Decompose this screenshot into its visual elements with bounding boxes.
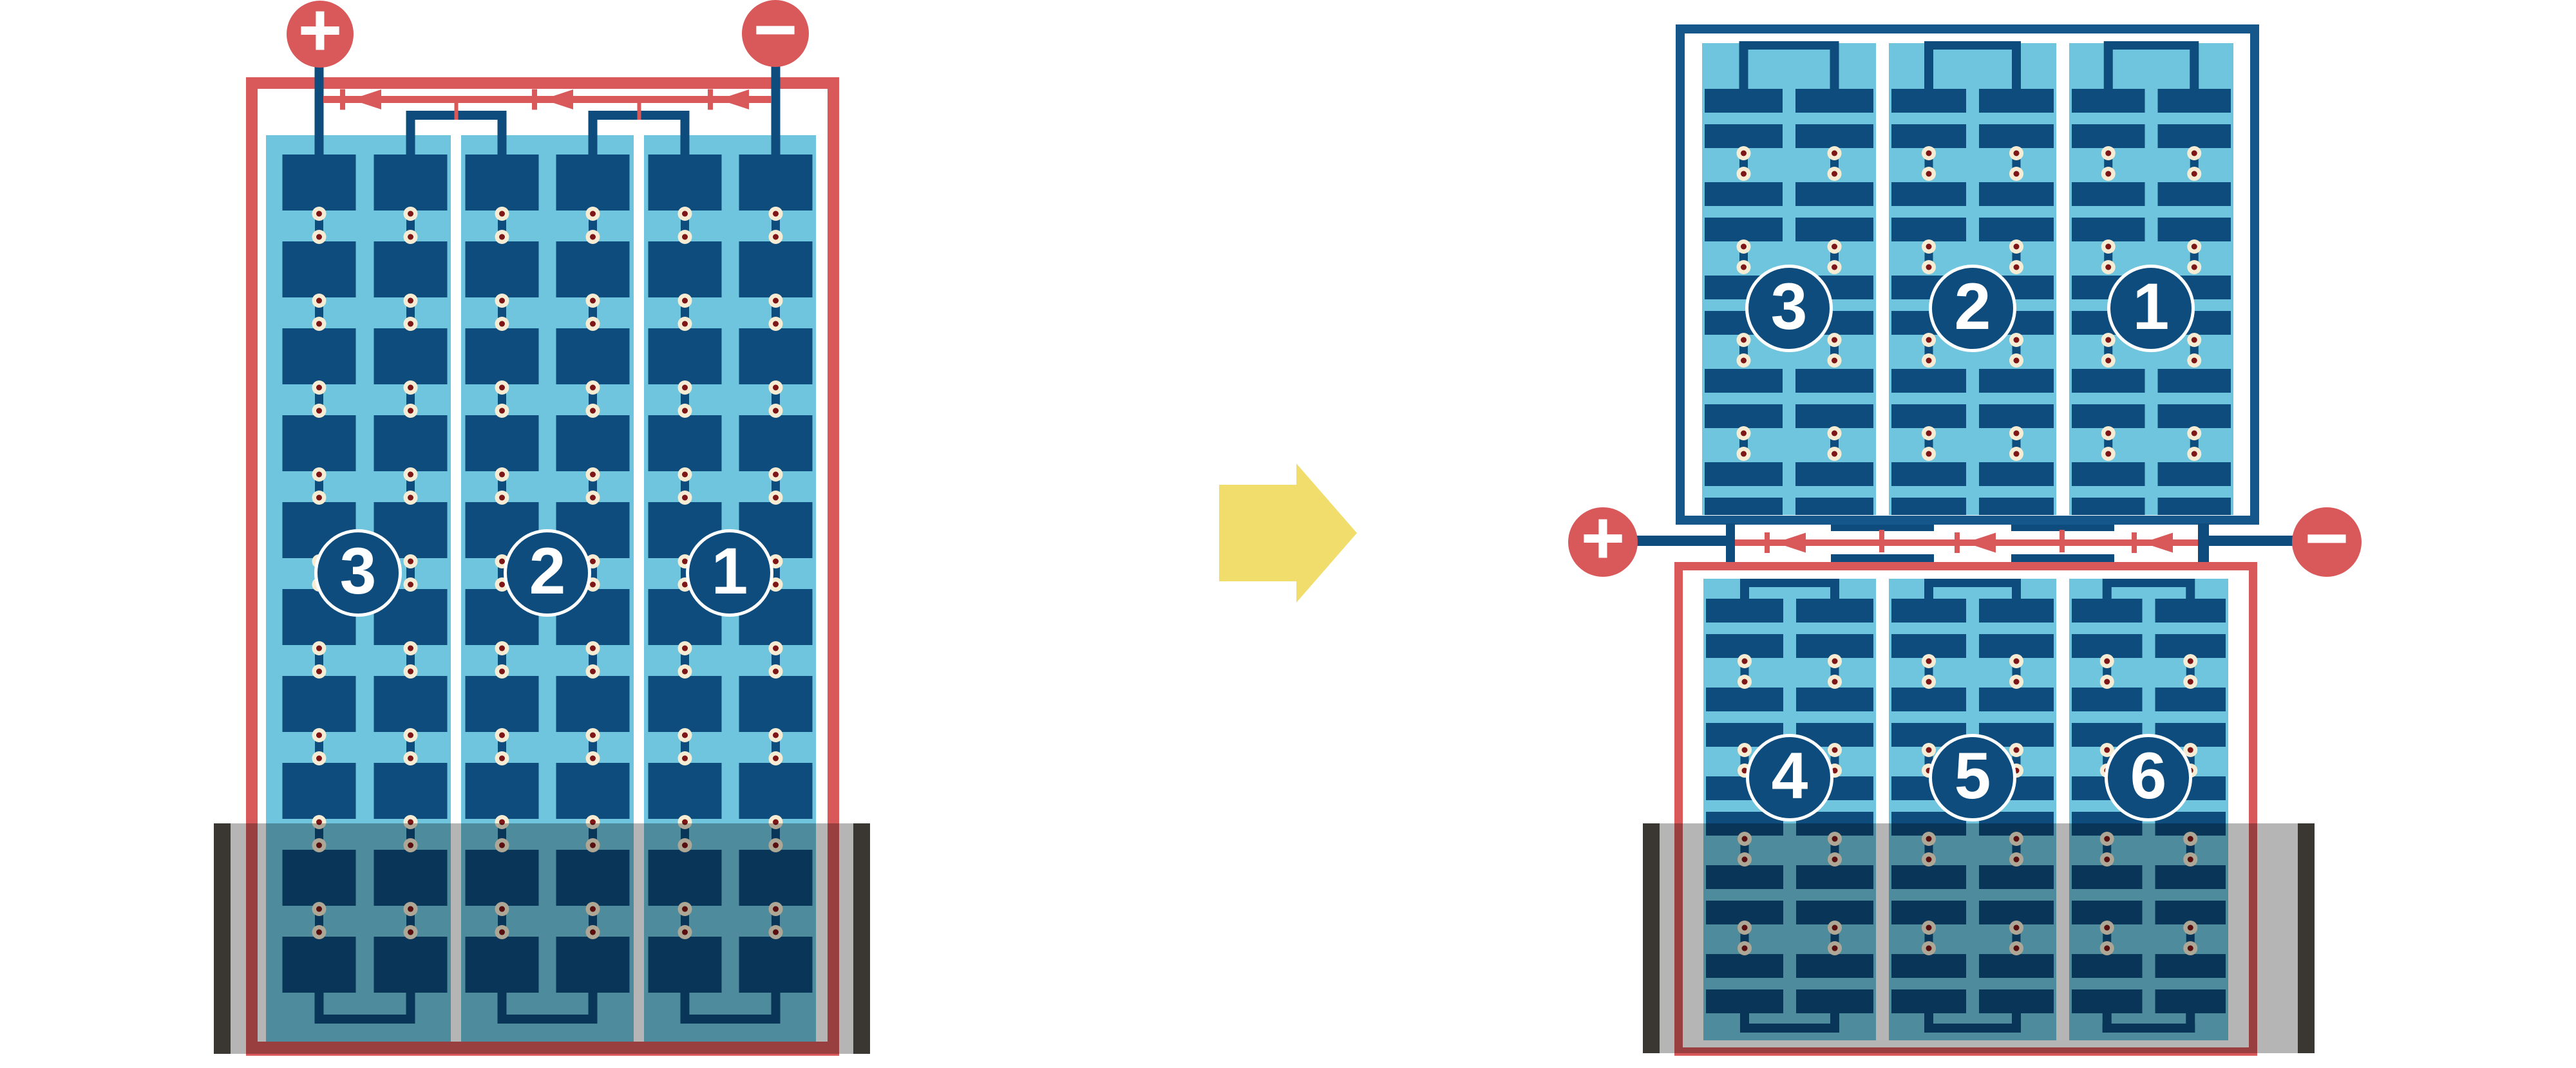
string-label-circle: 2 bbox=[1929, 265, 2016, 352]
cell-plate bbox=[283, 328, 356, 384]
string-label: 1 bbox=[712, 538, 748, 604]
top-bridge-leg bbox=[1924, 50, 1933, 89]
cell-plate bbox=[649, 328, 722, 384]
cell-plate bbox=[1795, 404, 1873, 428]
shade-edge-bar bbox=[853, 823, 870, 1054]
string-label-circle: 3 bbox=[314, 529, 402, 617]
cell-plate bbox=[649, 415, 722, 471]
cell-plate bbox=[739, 328, 813, 384]
cell-plate bbox=[1795, 369, 1873, 393]
pv-module-shading-figure: + − + − 3 2 1 3 2 1 4 5 6 bbox=[0, 0, 2576, 1068]
solder-dot-center bbox=[590, 669, 596, 675]
solder-dot-center bbox=[2105, 431, 2111, 436]
solder-dot-center bbox=[499, 472, 505, 478]
top-bridge-leg bbox=[589, 120, 598, 155]
solder-dot-center bbox=[1832, 431, 1837, 436]
solder-dot-center bbox=[316, 472, 322, 478]
solder-dot-center bbox=[682, 646, 688, 651]
cell-plate bbox=[1705, 462, 1783, 486]
solder-dot-center bbox=[2105, 244, 2111, 250]
solder-dot-center bbox=[682, 298, 688, 304]
solder-dot-center bbox=[1832, 151, 1837, 156]
shading-group bbox=[214, 823, 2315, 1054]
solder-dot-center bbox=[1832, 659, 1838, 664]
solder-dot-center bbox=[2014, 747, 2020, 753]
solder-dot-center bbox=[499, 495, 505, 501]
cell-plate bbox=[1795, 89, 1873, 113]
transform-arrow-group bbox=[1219, 464, 1357, 603]
solder-dot-center bbox=[2192, 337, 2197, 343]
solder-dot-center bbox=[773, 495, 779, 501]
cell-plate bbox=[466, 241, 539, 297]
cell-plate bbox=[2072, 369, 2145, 393]
cell-plate bbox=[466, 415, 539, 471]
cell-plate bbox=[2158, 182, 2231, 206]
cell-plate bbox=[1795, 218, 1873, 241]
cell-plate bbox=[1706, 688, 1783, 711]
solder-dot-center bbox=[1741, 451, 1747, 457]
solder-dot-center bbox=[773, 646, 779, 651]
solder-dot-center bbox=[682, 756, 688, 762]
shadow-overlay bbox=[1660, 823, 2298, 1053]
top-bridge-leg bbox=[2190, 50, 2199, 89]
cell-plate bbox=[466, 155, 539, 211]
cell-plate bbox=[2072, 404, 2145, 428]
solder-dot-center bbox=[773, 669, 779, 675]
cell-plate bbox=[1979, 688, 2054, 711]
solder-dot-center bbox=[499, 211, 505, 217]
cell-plate bbox=[739, 415, 813, 471]
positive-stem bbox=[315, 64, 324, 155]
cell-plate bbox=[649, 763, 722, 819]
top-bridge-bar bbox=[1924, 41, 2021, 50]
cell-plate bbox=[1979, 182, 2054, 206]
solder-dot-center bbox=[408, 298, 413, 304]
cell-plate bbox=[1979, 599, 2054, 623]
cell-plate bbox=[1705, 369, 1783, 393]
string-label: 3 bbox=[1771, 274, 1808, 339]
string-label-circle: 1 bbox=[686, 529, 773, 617]
solder-dot-center bbox=[1832, 244, 1837, 250]
solder-dot-center bbox=[773, 298, 779, 304]
cell-plate bbox=[1795, 182, 1873, 206]
solder-dot-center bbox=[2105, 337, 2111, 343]
solder-dot-center bbox=[682, 472, 688, 478]
solder-dot-center bbox=[2105, 358, 2111, 364]
solder-dot-center bbox=[773, 321, 779, 327]
solder-dot-center bbox=[1926, 244, 1932, 250]
solder-dot-center bbox=[408, 733, 413, 738]
solder-dot-center bbox=[1926, 451, 1932, 457]
cell-plate bbox=[2158, 498, 2231, 515]
cell-plate bbox=[1705, 124, 1783, 148]
solder-dot-center bbox=[2192, 244, 2197, 250]
cell-plate bbox=[1979, 404, 2054, 428]
string-gap bbox=[2056, 43, 2069, 515]
cell-plate bbox=[1891, 688, 1966, 711]
cell-plate bbox=[1979, 89, 2054, 113]
solder-dot-center bbox=[499, 298, 505, 304]
cell-plate bbox=[466, 763, 539, 819]
solder-dot-center bbox=[499, 669, 505, 675]
top-bridge-leg bbox=[2012, 50, 2021, 89]
solder-dot-center bbox=[1832, 171, 1837, 177]
solder-dot-center bbox=[316, 408, 322, 414]
cell-plate bbox=[2158, 218, 2231, 241]
solder-dot-center bbox=[408, 211, 413, 217]
cell-plate bbox=[2072, 599, 2143, 623]
solder-dot-center bbox=[1926, 337, 1932, 343]
solder-dot-center bbox=[590, 756, 596, 762]
top-bridge-bar bbox=[1739, 41, 1839, 50]
cell-plate bbox=[1891, 218, 1966, 241]
solder-dot-center bbox=[682, 495, 688, 501]
cell-plate bbox=[2158, 89, 2231, 113]
right-arrow-icon bbox=[1219, 464, 1357, 603]
cell-plate bbox=[283, 155, 356, 211]
top-bridge-bar bbox=[1740, 579, 1839, 587]
solder-dot-center bbox=[2014, 659, 2020, 664]
solder-dot-center bbox=[2014, 431, 2020, 436]
top-bridge-leg bbox=[1830, 50, 1839, 89]
module-wiring-diagram-svg bbox=[0, 0, 2576, 1068]
cell-plate bbox=[556, 241, 630, 297]
string-label: 3 bbox=[340, 538, 377, 604]
solder-dot-center bbox=[1926, 431, 1932, 436]
solder-dot-center bbox=[2105, 151, 2111, 156]
cell-plate bbox=[1979, 369, 2054, 393]
string-label: 5 bbox=[1955, 743, 1991, 809]
diode-tap bbox=[455, 103, 459, 120]
solder-dot-center bbox=[2105, 451, 2111, 457]
shadow-overlay bbox=[231, 823, 853, 1054]
solder-dot-center bbox=[408, 234, 413, 240]
cell-plate bbox=[374, 676, 448, 732]
solder-dot-center bbox=[2192, 151, 2197, 156]
cell-plate bbox=[1891, 182, 1966, 206]
right-negative-terminal: − bbox=[2292, 507, 2362, 577]
cell-plate bbox=[2072, 218, 2145, 241]
diode-tap bbox=[638, 103, 641, 120]
solder-dot-center bbox=[590, 385, 596, 391]
diode-bar bbox=[2132, 532, 2137, 553]
solder-dot-center bbox=[408, 321, 413, 327]
solder-dot-center bbox=[316, 669, 322, 675]
cell-plate bbox=[2158, 462, 2231, 486]
solder-dot-center bbox=[2014, 265, 2020, 270]
positive-bus bbox=[1636, 536, 1735, 546]
string-label-circle: 3 bbox=[1745, 265, 1833, 352]
top-bridge-leg bbox=[406, 120, 415, 155]
plus-icon: + bbox=[298, 0, 343, 68]
solder-dot-center bbox=[2192, 265, 2197, 270]
solder-dot-center bbox=[2188, 747, 2193, 753]
junction-riser bbox=[2198, 523, 2209, 562]
solder-dot-center bbox=[2105, 171, 2111, 177]
solder-dot-center bbox=[1926, 679, 1932, 685]
cell-plate bbox=[1891, 462, 1966, 486]
solder-dot-center bbox=[316, 646, 322, 651]
string-label-circle: 4 bbox=[1746, 734, 1833, 821]
interconnect-tab bbox=[1831, 554, 1934, 562]
solder-dot-center bbox=[408, 756, 413, 762]
string-label-circle: 5 bbox=[1929, 734, 2016, 821]
cell-plate bbox=[2155, 599, 2226, 623]
minus-icon: − bbox=[2305, 500, 2349, 576]
top-bridge-bar bbox=[1924, 579, 2021, 587]
solder-dot-center bbox=[2014, 337, 2020, 343]
solder-dot-center bbox=[316, 211, 322, 217]
junction-riser bbox=[1726, 523, 1735, 562]
solder-dot-center bbox=[499, 234, 505, 240]
solder-dot-center bbox=[773, 756, 779, 762]
solder-dot-center bbox=[499, 321, 505, 327]
cell-plate bbox=[374, 763, 448, 819]
cell-plate bbox=[466, 328, 539, 384]
solder-dot-center bbox=[1832, 337, 1837, 343]
cell-plate bbox=[1705, 498, 1783, 515]
solder-dot-center bbox=[682, 408, 688, 414]
junction-tick bbox=[1879, 530, 1884, 552]
solder-dot-center bbox=[499, 756, 505, 762]
solder-dot-center bbox=[1832, 358, 1837, 364]
minus-icon: − bbox=[753, 0, 798, 68]
cell-plate bbox=[1891, 369, 1966, 393]
cell-plate bbox=[2072, 89, 2145, 113]
diode-arrow bbox=[1965, 533, 1996, 553]
cell-plate bbox=[1979, 462, 2054, 486]
solder-dot-center bbox=[682, 669, 688, 675]
cell-plate bbox=[1705, 218, 1783, 241]
solder-dot-center bbox=[590, 408, 596, 414]
diode-bar bbox=[1955, 532, 1960, 553]
cell-plate bbox=[2158, 124, 2231, 148]
cell-plate bbox=[2155, 688, 2226, 711]
cell-plate bbox=[1795, 462, 1873, 486]
solder-dot-center bbox=[2014, 358, 2020, 364]
junction-tick bbox=[2060, 530, 2065, 552]
solder-dot-center bbox=[316, 756, 322, 762]
solder-dot-center bbox=[499, 385, 505, 391]
solder-dot-center bbox=[2104, 747, 2110, 753]
shade-edge-bar bbox=[214, 823, 231, 1054]
solder-dot-center bbox=[316, 385, 322, 391]
solder-dot-center bbox=[1926, 747, 1932, 753]
solder-dot-center bbox=[1741, 244, 1747, 250]
cell-plate bbox=[374, 415, 448, 471]
cell-plate bbox=[283, 241, 356, 297]
solder-dot-center bbox=[2014, 151, 2020, 156]
cell-plate bbox=[649, 676, 722, 732]
string-label: 2 bbox=[529, 538, 566, 604]
string-label-circle: 6 bbox=[2105, 734, 2192, 821]
cell-plate bbox=[1795, 498, 1873, 515]
solder-dot-center bbox=[2014, 171, 2020, 177]
solder-dot-center bbox=[2014, 679, 2020, 685]
solder-dot-center bbox=[1832, 679, 1838, 685]
solder-dot-center bbox=[1832, 265, 1837, 270]
diode-arrow bbox=[1776, 533, 1806, 553]
right-junction-group bbox=[1636, 523, 2293, 562]
cell-plate bbox=[374, 241, 448, 297]
left-negative-terminal: − bbox=[742, 0, 809, 67]
solder-dot-center bbox=[499, 408, 505, 414]
solder-dot-center bbox=[408, 495, 413, 501]
solder-dot-center bbox=[590, 559, 596, 565]
cell-plate bbox=[2158, 404, 2231, 428]
solder-dot-center bbox=[408, 669, 413, 675]
solder-dot-center bbox=[499, 733, 505, 738]
string-gap bbox=[1876, 43, 1889, 515]
diode-bar bbox=[340, 89, 345, 110]
string-label: 4 bbox=[1772, 743, 1808, 809]
solder-dot-center bbox=[682, 321, 688, 327]
solder-dot-center bbox=[316, 733, 322, 738]
cell-plate bbox=[2072, 182, 2145, 206]
string-label-circle: 1 bbox=[2107, 265, 2195, 352]
cell-plate bbox=[1979, 124, 2054, 148]
cell-plate bbox=[466, 676, 539, 732]
solder-dot-center bbox=[590, 211, 596, 217]
cell-plate bbox=[739, 676, 813, 732]
solder-dot-center bbox=[408, 559, 413, 565]
string-label: 1 bbox=[2133, 274, 2170, 339]
solder-dot-center bbox=[1926, 358, 1932, 364]
solder-dot-center bbox=[1832, 451, 1837, 457]
solder-dot-center bbox=[590, 733, 596, 738]
diode-bar bbox=[1765, 532, 1770, 553]
solder-dot-center bbox=[590, 472, 596, 478]
string-label: 6 bbox=[2130, 743, 2167, 809]
cell-plate bbox=[1891, 599, 1966, 623]
solder-dot-center bbox=[2192, 431, 2197, 436]
solder-dot-center bbox=[316, 298, 322, 304]
cell-plate bbox=[283, 415, 356, 471]
left-positive-terminal: + bbox=[287, 1, 354, 68]
solder-dot-center bbox=[2188, 659, 2193, 664]
cell-plate bbox=[1891, 498, 1966, 515]
solder-dot-center bbox=[316, 495, 322, 501]
solder-dot-center bbox=[408, 408, 413, 414]
cell-plate bbox=[1979, 218, 2054, 241]
cell-plate bbox=[556, 415, 630, 471]
solder-dot-center bbox=[1926, 151, 1932, 156]
cell-plate bbox=[739, 241, 813, 297]
solder-dot-center bbox=[2104, 679, 2110, 685]
top-bridge-bar bbox=[2103, 579, 2195, 587]
negative-bus bbox=[2209, 536, 2293, 546]
cell-plate bbox=[2072, 462, 2145, 486]
cell-plate bbox=[556, 763, 630, 819]
cell-plate bbox=[1705, 89, 1783, 113]
top-bridge-leg bbox=[2104, 50, 2113, 89]
top-bridge-leg bbox=[681, 120, 690, 155]
solder-dot-center bbox=[773, 582, 779, 588]
solder-dot-center bbox=[1926, 265, 1932, 270]
cell-plate bbox=[1705, 182, 1783, 206]
solder-dot-center bbox=[1832, 747, 1838, 753]
solder-dot-center bbox=[773, 408, 779, 414]
solder-dot-center bbox=[316, 234, 322, 240]
solder-dot-center bbox=[2188, 679, 2193, 685]
solder-dot-center bbox=[2192, 358, 2197, 364]
cell-plate bbox=[739, 763, 813, 819]
cell-plate bbox=[556, 328, 630, 384]
solder-dot-center bbox=[590, 234, 596, 240]
cell-plate bbox=[374, 155, 448, 211]
cell-plate bbox=[1891, 89, 1966, 113]
cell-plate bbox=[649, 155, 722, 211]
cell-plate bbox=[556, 155, 630, 211]
solder-dot-center bbox=[590, 646, 596, 651]
solder-dot-center bbox=[408, 385, 413, 391]
solder-dot-center bbox=[1742, 679, 1748, 685]
solder-dot-center bbox=[1741, 431, 1747, 436]
cell-plate bbox=[1796, 599, 1873, 623]
diode-arrow bbox=[2143, 533, 2173, 553]
diode-bar bbox=[532, 89, 537, 110]
cell-plate bbox=[2158, 369, 2231, 393]
solder-dot-center bbox=[682, 234, 688, 240]
cell-plate bbox=[739, 155, 813, 211]
negative-stem bbox=[772, 64, 781, 155]
string-label-circle: 2 bbox=[504, 529, 591, 617]
solder-dot-center bbox=[773, 472, 779, 478]
solder-dot-center bbox=[1926, 171, 1932, 177]
top-bridge-leg bbox=[498, 120, 507, 155]
solder-dot-center bbox=[590, 582, 596, 588]
solder-dot-center bbox=[682, 733, 688, 738]
solder-dot-center bbox=[2014, 451, 2020, 457]
solder-dot-center bbox=[682, 211, 688, 217]
plus-icon: + bbox=[1581, 500, 1625, 576]
solder-dot-center bbox=[590, 298, 596, 304]
cell-plate bbox=[2072, 498, 2145, 515]
solder-dot-center bbox=[316, 321, 322, 327]
cell-plate bbox=[1979, 498, 2054, 515]
solder-dot-center bbox=[773, 733, 779, 738]
top-bridge-bar bbox=[2104, 41, 2199, 50]
solder-dot-center bbox=[590, 321, 596, 327]
solder-dot-center bbox=[1741, 358, 1747, 364]
solder-dot-center bbox=[682, 385, 688, 391]
cell-plate bbox=[1706, 599, 1783, 623]
cell-plate bbox=[1705, 404, 1783, 428]
string-label: 2 bbox=[1955, 274, 1991, 339]
cell-plate bbox=[1891, 124, 1966, 148]
cell-plate bbox=[1796, 688, 1873, 711]
solder-dot-center bbox=[408, 582, 413, 588]
cell-plate bbox=[1891, 404, 1966, 428]
cell-plate bbox=[2072, 688, 2143, 711]
cell-plate bbox=[374, 328, 448, 384]
solder-dot-center bbox=[408, 472, 413, 478]
solder-dot-center bbox=[1741, 337, 1747, 343]
solder-dot-center bbox=[1741, 151, 1747, 156]
solder-dot-center bbox=[499, 646, 505, 651]
solder-dot-center bbox=[1741, 171, 1747, 177]
solder-dot-center bbox=[590, 495, 596, 501]
diode-bar bbox=[708, 89, 713, 110]
solder-dot-center bbox=[1742, 747, 1748, 753]
shade-edge-bar bbox=[2298, 823, 2315, 1053]
cell-plate bbox=[283, 763, 356, 819]
solder-dot-center bbox=[773, 559, 779, 565]
solder-dot-center bbox=[1741, 265, 1747, 270]
solder-dot-center bbox=[2192, 171, 2197, 177]
interconnect-tab bbox=[2011, 554, 2114, 562]
cell-plate bbox=[283, 676, 356, 732]
